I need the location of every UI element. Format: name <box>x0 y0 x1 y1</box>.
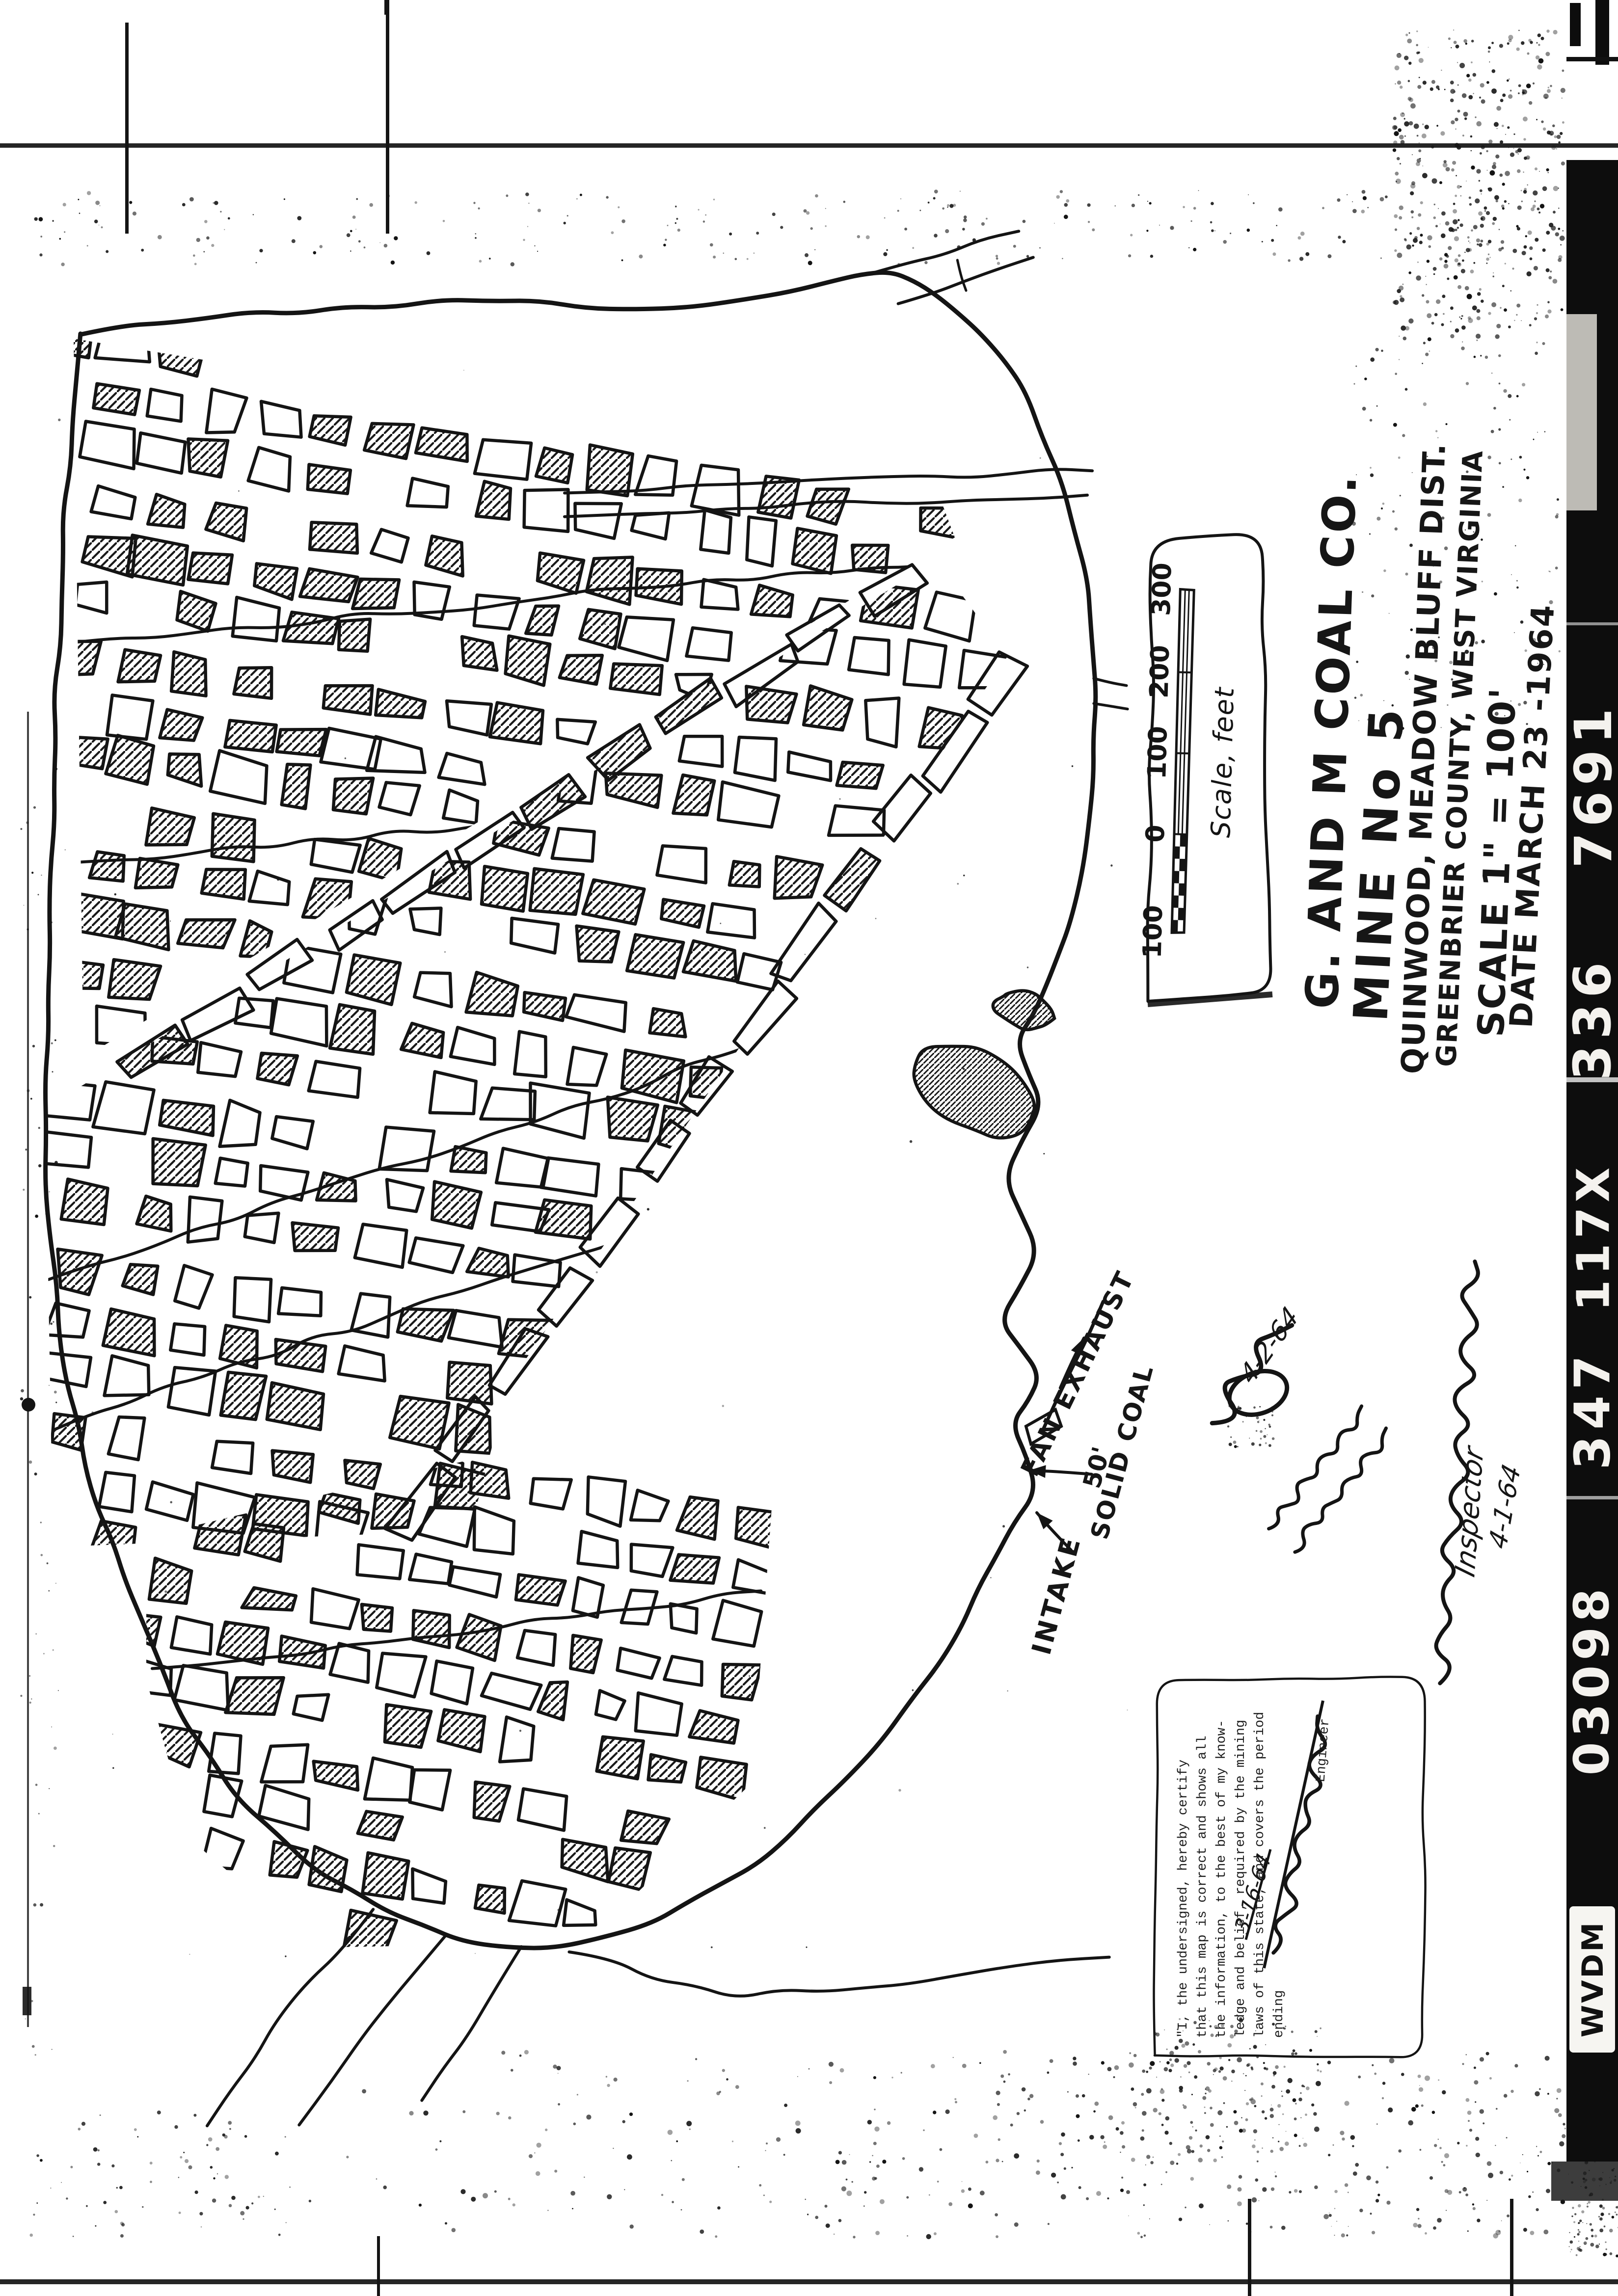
scan-speckle <box>1271 2085 1275 2089</box>
scan-speckle <box>1441 212 1446 216</box>
scan-speckle <box>1486 258 1489 261</box>
scan-speckle <box>81 2122 85 2126</box>
scan-speckle <box>1496 200 1498 202</box>
scan-speckle <box>1438 2080 1439 2081</box>
scan-speckle <box>795 2121 801 2126</box>
scan-speckle <box>769 2201 772 2203</box>
frame-line-top <box>0 143 1618 148</box>
scan-speckle <box>1323 2214 1329 2219</box>
scan-speckle <box>1207 2149 1210 2152</box>
scan-speckle <box>444 951 446 953</box>
scan-speckle <box>1165 2116 1170 2121</box>
scan-speckle <box>1320 2028 1321 2029</box>
scan-speckle <box>1143 2204 1145 2206</box>
scan-speckle <box>686 2121 692 2126</box>
mine-pillar <box>115 904 168 950</box>
scan-speckle <box>1471 150 1472 151</box>
scan-speckle <box>1409 32 1410 34</box>
mine-pillar <box>920 508 957 537</box>
scan-speckle <box>263 2196 264 2197</box>
mine-pillar <box>272 1451 313 1483</box>
mine-pillar <box>596 1691 625 1720</box>
scan-speckle <box>1450 80 1454 84</box>
mine-pillar <box>451 1147 486 1173</box>
scan-speckle <box>805 954 806 955</box>
scan-speckle <box>596 1271 598 1273</box>
scan-speckle <box>1394 249 1397 252</box>
scan-speckle <box>1431 80 1435 84</box>
scan-speckle <box>1024 2109 1026 2111</box>
scan-speckle <box>55 1402 57 1403</box>
mine-pillar <box>171 652 206 696</box>
scan-speckle <box>1553 279 1558 284</box>
scan-speckle <box>1128 2216 1129 2216</box>
scan-speckle <box>1438 208 1439 209</box>
scan-speckle <box>33 2214 35 2216</box>
scan-speckle <box>1486 2052 1489 2056</box>
scan-speckle <box>29 1702 31 1704</box>
mine-pillar <box>147 389 182 421</box>
scan-speckle <box>1468 240 1469 241</box>
scan-speckle <box>1260 1430 1263 1433</box>
scan-speckle <box>1541 37 1544 40</box>
mine-pillar <box>32 1131 91 1168</box>
scan-speckle <box>934 189 938 193</box>
scan-speckle <box>1525 235 1527 237</box>
scan-speckle <box>1488 254 1489 255</box>
scan-speckle <box>1064 214 1068 219</box>
mine-pillar <box>198 1042 241 1076</box>
mine-pillar <box>566 995 626 1032</box>
mine-pillar <box>44 1303 89 1337</box>
scan-speckle <box>1540 2151 1542 2153</box>
scan-speckle <box>1210 2123 1214 2127</box>
scan-speckle <box>100 2114 101 2116</box>
scan-speckle <box>764 1827 766 1829</box>
scan-speckle <box>1558 258 1562 262</box>
scan-speckle <box>647 1208 649 1210</box>
scan-speckle <box>1518 84 1521 87</box>
scan-speckle <box>1430 87 1433 91</box>
mine-pillar <box>127 535 188 585</box>
scan-speckle <box>1282 2095 1283 2097</box>
scan-speckle <box>1317 2069 1320 2072</box>
scan-speckle <box>1469 242 1470 243</box>
scan-speckle <box>384 244 388 248</box>
scan-speckle <box>572 2208 573 2210</box>
scan-speckle <box>1550 85 1552 87</box>
scale-bar-checker <box>1171 920 1178 932</box>
scan-speckle <box>1543 2230 1548 2235</box>
scan-speckle <box>320 245 323 248</box>
scan-speckle <box>1247 229 1250 232</box>
scan-speckle <box>1523 469 1525 471</box>
scan-speckle <box>1594 2235 1597 2238</box>
scan-speckle <box>873 2142 877 2145</box>
scan-speckle <box>872 2155 873 2157</box>
scan-speckle <box>986 218 988 220</box>
scan-speckle <box>1467 294 1472 299</box>
scan-speckle <box>508 2198 511 2200</box>
scan-speckle <box>81 1334 81 1335</box>
scan-speckle <box>1398 2149 1402 2153</box>
scan-speckle <box>756 232 759 235</box>
scan-speckle <box>78 199 79 200</box>
scale-bar-divider <box>1174 834 1187 834</box>
scan-speckle <box>621 219 625 223</box>
scan-speckle <box>1263 1435 1266 1438</box>
scan-speckle <box>158 235 162 240</box>
scan-speckle <box>1446 423 1448 425</box>
scan-speckle <box>1409 121 1413 126</box>
scan-speckle <box>1439 257 1443 261</box>
scan-speckle <box>1425 2232 1427 2235</box>
scan-speckle <box>1540 204 1544 208</box>
scan-speckle <box>947 204 949 207</box>
scan-speckle <box>1539 171 1540 172</box>
scan-speckle <box>1527 185 1528 186</box>
scan-speckle <box>1513 148 1514 149</box>
scan-speckle <box>1311 2104 1314 2107</box>
scan-speckle <box>1231 2070 1235 2074</box>
scan-speckle <box>1599 2229 1603 2233</box>
scan-speckle <box>883 252 887 256</box>
mine-pillar <box>157 1724 201 1767</box>
mine-pillar <box>311 1589 359 1629</box>
mine-map-drawing: 1000100200300Scale, feet <box>0 0 1618 2296</box>
scan-speckle <box>20 1397 23 1400</box>
scan-speckle <box>929 2194 930 2196</box>
scan-speckle <box>1279 2147 1284 2151</box>
scan-speckle <box>1376 517 1380 521</box>
scan-speckle <box>1412 244 1414 246</box>
scan-speckle <box>292 239 296 243</box>
scan-speckle <box>1516 587 1519 589</box>
scan-speckle <box>1495 334 1499 339</box>
scan-speckle <box>195 2190 198 2194</box>
scan-speckle <box>87 245 88 246</box>
scan-speckle <box>995 2213 998 2216</box>
scan-speckle <box>99 225 100 226</box>
scan-speckle <box>826 2223 830 2228</box>
scan-speckle <box>1305 2113 1307 2116</box>
scan-speckle <box>672 2201 674 2203</box>
scan-speckle <box>189 197 194 202</box>
scan-speckle <box>1093 2110 1096 2113</box>
scan-speckle <box>1441 70 1442 71</box>
scan-speckle <box>1549 223 1553 227</box>
scan-speckle <box>825 208 826 209</box>
scan-speckle <box>1336 2221 1337 2222</box>
scan-speckle <box>1309 2049 1312 2052</box>
scan-speckle <box>689 2129 691 2130</box>
scan-speckle <box>1135 2107 1136 2109</box>
scan-speckle <box>1578 2229 1579 2231</box>
mine-pillar <box>671 1604 697 1633</box>
scan-speckle <box>735 2085 739 2089</box>
scan-speckle <box>34 217 38 221</box>
scan-speckle <box>1461 315 1463 317</box>
scan-speckle <box>1331 2226 1332 2227</box>
scan-speckle <box>1511 574 1512 575</box>
scan-speckle <box>1320 2070 1321 2072</box>
scan-speckle <box>1039 247 1041 249</box>
scan-speckle <box>1412 154 1413 155</box>
scan-speckle <box>475 1953 476 1954</box>
mine-pillar <box>245 1524 284 1561</box>
scan-speckle <box>1481 240 1483 242</box>
scan-speckle <box>32 1045 35 1047</box>
scan-speckle <box>1416 30 1418 32</box>
scan-speckle <box>1502 486 1504 488</box>
scan-speckle <box>948 2202 952 2206</box>
scan-speckle <box>1467 236 1470 239</box>
scan-speckle <box>1246 2102 1249 2105</box>
scan-speckle <box>1527 2171 1528 2172</box>
scan-speckle <box>1420 2149 1422 2151</box>
scan-speckle <box>1190 2121 1193 2124</box>
scan-speckle <box>519 2055 522 2057</box>
scan-speckle <box>949 204 953 208</box>
mine-pillar <box>575 504 621 538</box>
scan-speckle <box>1517 227 1520 230</box>
scan-speckle <box>1144 2235 1146 2237</box>
scan-speckle <box>1153 2108 1158 2112</box>
scan-speckle <box>31 872 33 874</box>
scan-speckle <box>796 2128 801 2134</box>
mine-pillar <box>500 1717 534 1762</box>
scan-speckle <box>1535 352 1538 355</box>
scan-speckle <box>705 214 706 216</box>
scan-speckle <box>439 2140 441 2142</box>
scan-speckle <box>1541 120 1543 123</box>
scan-speckle <box>1535 238 1538 242</box>
scan-speckle <box>1491 88 1497 94</box>
scan-speckle <box>1509 39 1512 42</box>
mine-pillar <box>283 612 339 643</box>
scan-speckle <box>934 234 938 238</box>
mine-pillar <box>153 1139 206 1186</box>
scan-speckle <box>1554 2108 1559 2113</box>
scan-speckle <box>1469 203 1472 206</box>
scan-speckle <box>1026 255 1029 258</box>
scan-speckle <box>1265 1428 1266 1429</box>
scan-speckle <box>1562 2134 1565 2138</box>
mine-pillar <box>670 1555 719 1583</box>
scan-speckle <box>1269 1426 1271 1428</box>
mine-pillar <box>339 1346 385 1381</box>
scan-speckle <box>364 246 366 248</box>
scan-speckle <box>1175 2058 1179 2062</box>
scan-speckle <box>1443 162 1448 167</box>
scan-speckle <box>1228 2220 1229 2222</box>
mine-pillar <box>664 1656 701 1685</box>
scan-speckle <box>1371 594 1374 597</box>
scan-speckle <box>1439 2147 1442 2149</box>
scan-speckle <box>1419 58 1424 63</box>
scan-speckle <box>1489 61 1490 62</box>
scan-speckle <box>1488 312 1491 315</box>
scan-speckle <box>1461 325 1466 330</box>
frame-tick <box>1248 2199 1251 2296</box>
scan-speckle <box>1526 83 1531 88</box>
scan-speckle <box>1183 206 1185 209</box>
scan-speckle <box>1578 2231 1581 2233</box>
scan-speckle <box>580 194 582 196</box>
mine-pillar <box>471 1462 509 1498</box>
scan-speckle <box>945 229 949 233</box>
scan-speckle <box>1557 2088 1562 2093</box>
scan-speckle <box>784 2104 787 2107</box>
scan-speckle <box>1521 320 1522 321</box>
scan-speckle <box>1289 2191 1291 2193</box>
scan-speckle <box>900 198 901 199</box>
scan-speckle <box>1253 2045 1257 2049</box>
mine-pillar <box>677 1497 718 1539</box>
scan-speckle <box>1486 263 1487 264</box>
scale-bar-checker <box>1179 883 1186 896</box>
scan-speckle <box>49 1385 50 1386</box>
scan-speckle <box>1392 510 1395 513</box>
mine-pillar <box>407 479 448 507</box>
stream-line <box>207 1909 373 2126</box>
mine-pillar <box>718 782 779 827</box>
scan-speckle <box>435 2148 438 2151</box>
scan-speckle <box>1211 202 1214 205</box>
scan-speckle <box>1493 217 1497 221</box>
scan-speckle <box>1185 2207 1186 2208</box>
scan-speckle <box>1245 2118 1248 2121</box>
scan-speckle <box>1007 1690 1008 1691</box>
scan-speckle <box>1557 135 1561 139</box>
scan-speckle <box>1481 216 1485 221</box>
scan-speckle <box>1530 257 1533 260</box>
scan-speckle <box>1270 2226 1273 2229</box>
scan-speckle <box>875 918 877 919</box>
scan-speckle <box>1231 2081 1232 2082</box>
scan-speckle <box>201 2226 202 2228</box>
scan-speckle <box>1473 2207 1476 2210</box>
scan-speckle <box>1273 2071 1277 2075</box>
scan-speckle <box>1230 233 1231 234</box>
scale-bar-checker <box>1173 871 1180 883</box>
scan-speckle <box>98 2149 100 2151</box>
scan-speckle <box>1456 175 1457 177</box>
scan-speckle <box>23 1189 25 1191</box>
scan-speckle <box>1094 2102 1099 2106</box>
scan-speckle <box>1254 2139 1256 2141</box>
scan-speckle <box>1249 2048 1251 2050</box>
scan-speckle <box>876 2164 880 2168</box>
scan-speckle <box>1598 2216 1600 2217</box>
scan-speckle <box>1259 1420 1260 1421</box>
scan-speckle <box>1521 41 1524 45</box>
scan-speckle <box>912 247 914 249</box>
scan-speckle <box>611 231 614 234</box>
scan-speckle <box>1479 180 1481 182</box>
scan-speckle <box>907 2235 908 2237</box>
scan-speckle <box>347 233 351 237</box>
scan-speckle <box>968 2203 973 2208</box>
mine-pillar <box>206 503 246 541</box>
scan-speckle <box>1520 2163 1521 2163</box>
scan-speckle <box>1175 2046 1179 2050</box>
scan-speckle <box>1433 267 1437 271</box>
scan-speckle <box>1447 2190 1452 2195</box>
scan-speckle <box>1546 2189 1550 2193</box>
mine-pillar <box>233 597 279 641</box>
scan-speckle <box>780 226 783 229</box>
mine-pillar <box>303 879 351 919</box>
scan-speckle <box>1434 2144 1437 2147</box>
certification-line: the information, to the best of my know- <box>1213 1694 1232 2038</box>
scan-speckle <box>857 235 860 238</box>
mine-pillar <box>409 1770 450 1810</box>
scan-speckle <box>586 2114 591 2119</box>
scan-speckle <box>1103 2145 1107 2149</box>
scan-speckle <box>1241 2117 1242 2119</box>
scan-speckle <box>1128 254 1131 257</box>
scan-speckle <box>1061 2133 1065 2137</box>
scan-speckle <box>1036 2170 1040 2175</box>
scan-speckle <box>1466 248 1470 252</box>
scan-speckle <box>41 875 42 876</box>
scan-speckle <box>1406 244 1411 249</box>
scan-speckle <box>1515 545 1516 547</box>
scan-speckle <box>1416 2208 1419 2211</box>
scan-speckle <box>1255 2178 1259 2182</box>
entry-chain-pillar <box>521 774 585 829</box>
scan-speckle <box>1412 472 1413 473</box>
scan-speckle <box>206 237 210 240</box>
scan-speckle <box>1399 286 1403 291</box>
scan-speckle <box>1096 2191 1101 2196</box>
scan-speckle <box>1522 2154 1523 2155</box>
scan-speckle <box>478 208 480 210</box>
mine-pillar <box>620 1169 654 1200</box>
scan-speckle <box>1599 2243 1600 2244</box>
scan-speckle <box>1284 2066 1286 2068</box>
mine-pillar <box>108 960 161 999</box>
scan-speckle <box>1548 571 1549 572</box>
scan-speckle <box>214 201 218 205</box>
scan-speckle <box>1503 389 1507 393</box>
scan-speckle <box>962 2181 963 2182</box>
scan-speckle <box>614 2078 618 2082</box>
frame-tick <box>1510 2199 1513 2296</box>
scan-speckle <box>1395 528 1398 531</box>
scan-speckle <box>1140 2136 1145 2141</box>
scan-speckle <box>1507 80 1509 82</box>
scan-speckle <box>1511 2175 1513 2177</box>
scan-speckle <box>1494 122 1499 127</box>
scan-speckle <box>880 2199 885 2204</box>
film-edge-code: 7691 <box>1564 702 1618 868</box>
scan-speckle <box>1547 301 1550 303</box>
scan-speckle <box>1569 2246 1570 2247</box>
film-edge-code: 336 <box>1563 956 1618 1080</box>
scan-speckle <box>1548 172 1549 173</box>
scan-speckle <box>1505 263 1506 265</box>
scan-speckle <box>695 2058 697 2060</box>
scan-speckle <box>1257 2151 1259 2153</box>
scan-speckle <box>1413 2223 1417 2227</box>
scan-speckle <box>20 1695 22 1697</box>
scan-speckle <box>1493 171 1495 173</box>
scan-speckle <box>1396 181 1397 183</box>
mine-pillar <box>261 401 301 437</box>
scan-speckle <box>621 259 623 261</box>
